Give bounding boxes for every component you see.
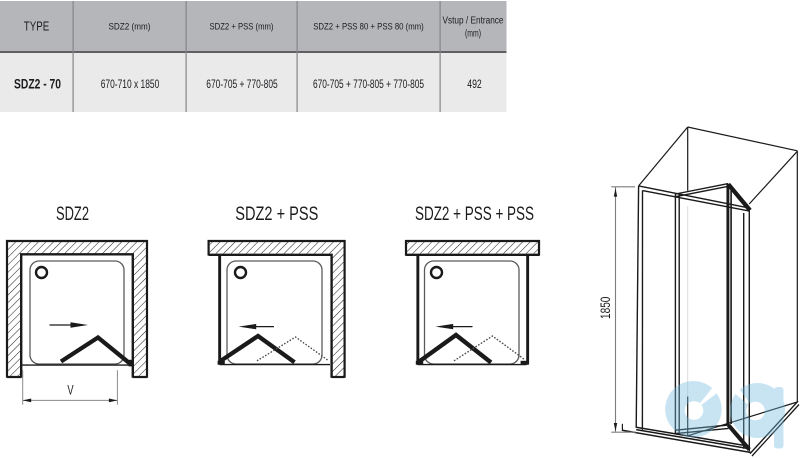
svg-text:TYPE: TYPE <box>24 19 50 34</box>
svg-text:670-710 x 1850: 670-710 x 1850 <box>101 77 160 91</box>
svg-text:V: V <box>67 383 73 398</box>
svg-text:SDZ2 + PSS 80 + PSS 80 (mm): SDZ2 + PSS 80 + PSS 80 (mm) <box>313 22 424 33</box>
svg-text:670-705 + 770-805: 670-705 + 770-805 <box>206 77 278 91</box>
svg-text:(mm): (mm) <box>465 29 481 40</box>
svg-text:1850: 1850 <box>598 297 613 319</box>
svg-text:Vstup / Entrance: Vstup / Entrance <box>443 16 504 27</box>
svg-text:SDZ2: SDZ2 <box>56 204 89 225</box>
svg-text:SDZ2 + PSS (mm): SDZ2 + PSS (mm) <box>210 22 274 33</box>
svg-text:492: 492 <box>467 77 482 91</box>
svg-text:SDZ2 (mm): SDZ2 (mm) <box>109 22 151 33</box>
svg-text:SDZ2 - 70: SDZ2 - 70 <box>14 76 61 92</box>
svg-text:670-705 + 770-805 + 770-805: 670-705 + 770-805 + 770-805 <box>313 77 424 91</box>
svg-text:SDZ2 + PSS + PSS: SDZ2 + PSS + PSS <box>415 204 534 225</box>
svg-text:SDZ2 + PSS: SDZ2 + PSS <box>235 204 318 225</box>
